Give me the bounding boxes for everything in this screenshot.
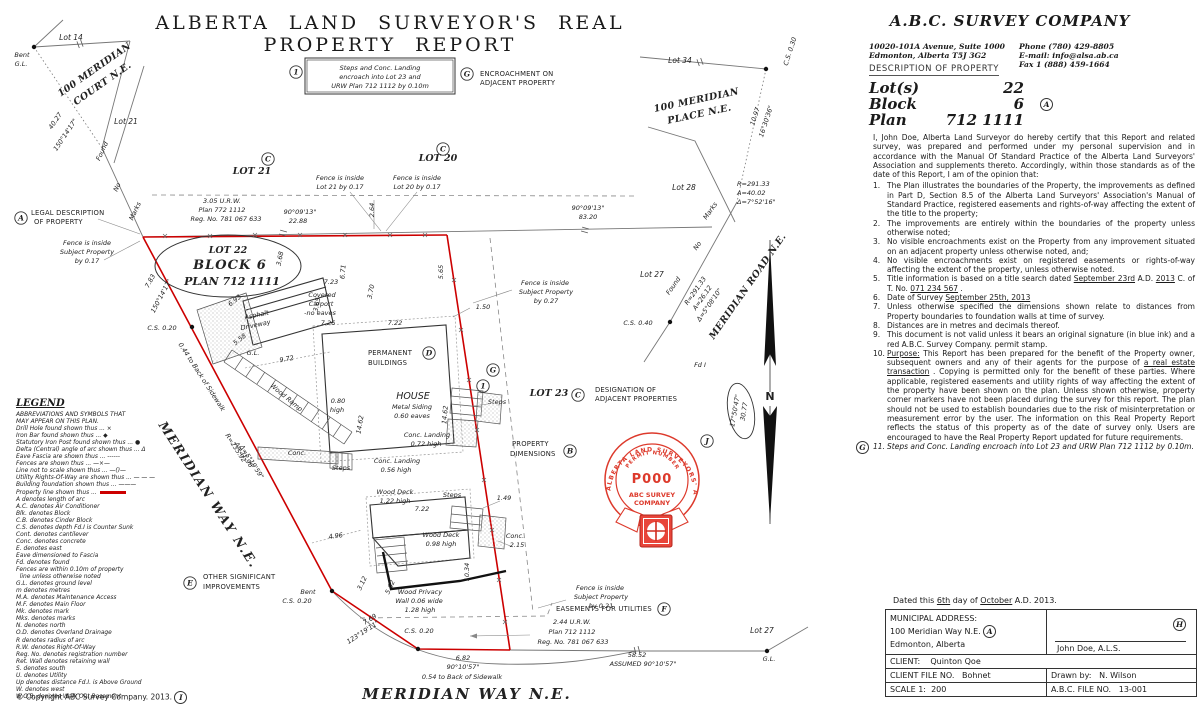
abc-file-value: 13-001 xyxy=(1119,685,1147,694)
legend-line: MAY APPEAR ON THIS PLAN. xyxy=(16,419,174,426)
circled-ref-g: G xyxy=(461,68,473,80)
svg-text:A: A xyxy=(17,214,24,223)
map-label: Lot 21 by 0.17 xyxy=(316,183,364,191)
circled-ref-a: A xyxy=(15,212,27,224)
map-label: ENCROACHMENT ON xyxy=(480,70,553,78)
map-label: Lot 34 xyxy=(668,56,692,65)
map-label: 5.65 xyxy=(437,265,445,279)
map-label: DESIGNATION OF xyxy=(595,386,656,394)
company-fax: Fax 1 (888) 459-1664 xyxy=(1019,60,1119,69)
map-label: 1.49 xyxy=(497,494,511,502)
map-label: 7.26 xyxy=(321,319,335,327)
svg-text:F: F xyxy=(660,605,667,614)
map-label: LOT 22 xyxy=(208,245,248,256)
map-label: Subject Property xyxy=(519,288,573,296)
map-label: Found xyxy=(664,275,683,297)
map-label: LOT 20 xyxy=(418,153,458,164)
circled-ref-d: D xyxy=(423,347,435,359)
legend-line: Conc. denotes concrete xyxy=(16,539,174,546)
map-label: by 0.27 xyxy=(534,297,559,305)
certification-item: 7.Unless otherwise specified the dimensi… xyxy=(873,302,1195,321)
map-label: 83.20 xyxy=(579,213,598,221)
map-label: G.L. xyxy=(763,655,776,663)
circled-ref-c: C xyxy=(437,143,449,155)
certification-item: 9.This document is not valid unless it b… xyxy=(873,330,1195,349)
map-label: 3.68 xyxy=(275,251,286,267)
map-label: Fence is inside xyxy=(316,174,364,182)
map-label: No xyxy=(692,240,704,252)
company-email: E-mail: info@alsa.ab.ca xyxy=(1019,51,1119,60)
map-label: 3.05 U.R.W. xyxy=(203,197,241,205)
ref-h: H xyxy=(1173,618,1186,631)
municipal-address-2: Edmonton, Alberta xyxy=(890,640,1042,649)
map-label: C.S. 0.40 xyxy=(623,319,652,327)
legend-line: Building foundation shown thus ... ——— xyxy=(16,482,174,489)
legend-line: O.D. denotes Overland Drainage xyxy=(16,630,174,637)
map-label: Marks xyxy=(127,200,143,222)
map-label: 22.88 xyxy=(289,217,308,225)
svg-text:G: G xyxy=(490,366,497,375)
company-address-1: 10020-101A Avenue, Suite 1000 xyxy=(869,42,1019,51)
map-label: 3.70 xyxy=(366,284,377,300)
map-label: A=40.02 xyxy=(736,189,766,197)
map-label: Wall 0.06 wide xyxy=(395,597,443,605)
company-address-2: Edmonton, Alberta T5J 3G2 xyxy=(869,51,1019,60)
abc-file-label: A.B.C. FILE NO. xyxy=(1051,685,1111,694)
legend-line: Delta (Central) angle of arc shown thus … xyxy=(16,447,174,454)
circled-ref-1: 1 xyxy=(477,380,489,392)
certification-text: I, John Doe, Alberta Land Surveyor do he… xyxy=(873,133,1195,451)
map-label: 90°09'13" xyxy=(284,208,317,216)
map-label: 1.28 high xyxy=(405,606,436,614)
certification-items: 1.The Plan illustrates the boundaries of… xyxy=(873,181,1195,451)
map-label: OF PROPERTY xyxy=(34,218,83,226)
svg-text:C: C xyxy=(575,391,581,400)
legend-line: R.W. denotes Right-Of-Way xyxy=(16,645,174,652)
svg-text:C: C xyxy=(440,145,446,154)
client-label: CLIENT: xyxy=(890,657,920,666)
map-label: 14.62 xyxy=(354,415,365,435)
map-label: 1.22 high xyxy=(380,497,411,505)
legend-line: C.S. denotes depth Fd.I is Counter Sunk xyxy=(16,525,174,532)
real-property-report-sheet: ALBERTA LAND SURVEYOR'S REAL PROPERTY RE… xyxy=(0,0,1200,724)
legend-line: ABBREVIATIONS AND SYMBOLS THAT xyxy=(16,412,174,419)
map-label: HOUSE xyxy=(396,391,430,402)
svg-text:D: D xyxy=(425,349,433,358)
certification-item: 4.No visible encroachments exist on regi… xyxy=(873,256,1195,275)
map-label: high xyxy=(330,406,344,414)
circled-ref-f: F xyxy=(658,603,670,615)
map-label: C.S. 0.20 xyxy=(282,597,311,605)
map-label: C.S. 0.20 xyxy=(147,324,176,332)
legend-line: Eave Fascia are shown thus ... ------ xyxy=(16,454,174,461)
map-label: Wood Ramp xyxy=(269,382,304,414)
map-label: ADJACENT PROPERTY xyxy=(480,79,556,87)
municipal-address-label: MUNICIPAL ADDRESS: xyxy=(890,614,1042,623)
map-label: MERIDIAN WAY N.E. xyxy=(361,685,571,703)
certification-item: 1.The Plan illustrates the boundaries of… xyxy=(873,181,1195,218)
map-label: R=291.33 xyxy=(737,180,770,188)
map-label: Found xyxy=(94,140,110,162)
map-label: 90°09'13" xyxy=(572,204,605,212)
map-label: Carport xyxy=(309,300,334,308)
legend-line: S. denotes south xyxy=(16,666,174,673)
map-label: 0.98 high xyxy=(426,540,457,548)
stamp-permit-number: P000 xyxy=(632,472,673,487)
map-label: Fd I xyxy=(694,361,706,369)
signature-line xyxy=(1055,641,1186,642)
map-label: 3.12 xyxy=(356,575,369,592)
certification-item: 2.The improvements are entirely within t… xyxy=(873,219,1195,238)
map-label: MERIDIAN ROAD N.E. xyxy=(707,232,789,343)
company-phone: Phone (780) 429-8805 xyxy=(1019,42,1119,51)
municipal-address-1: 100 Meridian Way N.E. xyxy=(890,627,981,636)
map-label: Steps xyxy=(332,464,351,472)
map-label: Plan 772 1112 xyxy=(199,206,246,214)
drawn-by-label: Drawn by: xyxy=(1051,671,1091,680)
map-label: 7.83 xyxy=(143,273,157,290)
map-label: LOT 23 xyxy=(529,388,569,399)
certification-item: 3.No visible encroachments exist on the … xyxy=(873,237,1195,256)
legend-line: Reg. No. denotes registration number xyxy=(16,652,174,659)
drawn-by-value: N. Wilson xyxy=(1099,671,1136,680)
legend-line: Cont. denotes cantilever xyxy=(16,532,174,539)
map-label: Fence is inside xyxy=(521,279,569,287)
map-label: 2.15 xyxy=(510,541,524,549)
map-label: N xyxy=(765,390,774,403)
map-label: 1.50 xyxy=(476,303,490,311)
map-label: Conc. xyxy=(288,449,306,457)
report-panel: A.B.C. SURVEY COMPANY 10020-101A Avenue,… xyxy=(855,0,1200,724)
dated-line: Dated this 6th day of October A.D. 2013. xyxy=(893,596,1197,605)
legend-title: LEGEND xyxy=(16,398,174,409)
client-name: Quinton Qoe xyxy=(930,657,980,666)
legend-line: Up denotes distance Fd.I. is Above Groun… xyxy=(16,680,174,687)
company-name: A.B.C. SURVEY COMPANY xyxy=(855,12,1165,30)
map-label: 9.72 xyxy=(279,354,295,364)
legend-lines: ABBREVIATIONS AND SYMBOLS THATMAY APPEAR… xyxy=(16,412,174,701)
circled-ref-j: J xyxy=(701,435,713,447)
map-label: 40.27 xyxy=(47,110,65,131)
legend-line: A.C. denotes Air Conditioner xyxy=(16,504,174,511)
stamp-org-1: ABC SURVEY xyxy=(629,491,675,499)
map-label: PROPERTY xyxy=(512,440,549,448)
map-label: Marks xyxy=(702,200,720,221)
map-label: G.L. xyxy=(247,349,260,357)
map-label: Subject Property xyxy=(60,248,114,256)
svg-text:G: G xyxy=(464,70,471,79)
map-label: 14.62 xyxy=(440,405,450,424)
legend-line: R denotes radius of arc xyxy=(16,638,174,645)
map-label: Lot 20 by 0.17 xyxy=(393,183,441,191)
lot-block-plan: Lot(s) 22 Block 6 A Plan 712 1111 xyxy=(869,80,1069,128)
map-label: Lot 27 xyxy=(750,626,774,635)
map-label: Wood Deck xyxy=(423,531,460,539)
map-label: Fence is inside xyxy=(393,174,441,182)
map-label: Steps xyxy=(443,491,462,499)
map-label: Δ=7°52'16" xyxy=(736,198,776,206)
legend-line: N. denotes north xyxy=(16,623,174,630)
circled-ref-c: C xyxy=(572,389,584,401)
map-label: 10.34 xyxy=(463,563,471,582)
map-label: Lot 21 xyxy=(114,117,138,126)
legend-line: Mks. denotes marks xyxy=(16,616,174,623)
svg-text:J: J xyxy=(703,437,709,446)
certification-intro: I, John Doe, Alberta Land Surveyor do he… xyxy=(873,133,1195,179)
ref-a: A xyxy=(1040,98,1053,111)
certification-item: 8.Distances are in metres and decimals t… xyxy=(873,321,1195,330)
map-label: LEGAL DESCRIPTION xyxy=(31,209,104,217)
map-label: No xyxy=(112,181,123,192)
map-label: 6.82 xyxy=(456,654,470,662)
certification-item: 6.Date of Survey September 25th, 2013 xyxy=(873,293,1195,302)
map-label: by 0.17 xyxy=(75,257,100,265)
legend-line: Statutory Iron Post found shown thus ...… xyxy=(16,440,174,447)
map-label: Fence is inside xyxy=(63,239,111,247)
map-label: 5.62 xyxy=(384,579,397,596)
map-label: Covered xyxy=(308,291,336,299)
map-label: 0.60 eaves xyxy=(394,412,430,420)
svg-text:C: C xyxy=(265,155,271,164)
legend-line: Ret. Wall denotes retaining wall xyxy=(16,659,174,666)
stamp-org-2: COMPANY xyxy=(634,499,670,507)
certification-item: 10.Purpose: This Report has been prepare… xyxy=(873,349,1195,442)
map-label: Steps and Conc. Landing xyxy=(340,64,421,72)
north-arrow xyxy=(763,240,777,524)
legend-line: m denotes metres xyxy=(16,588,174,595)
map-label: 0.56 high xyxy=(381,466,412,474)
client-file-value: Bohnet xyxy=(962,671,991,680)
client-file-label: CLIENT FILE NO. xyxy=(890,671,954,680)
map-label: PERMANENT xyxy=(368,349,413,357)
map-label: 58.52 xyxy=(628,651,647,659)
map-label: OTHER SIGNIFICANT xyxy=(203,573,276,581)
plan-label: Plan xyxy=(869,111,939,129)
legend-line: Eave dimensioned to Fascia xyxy=(16,553,174,560)
legend: LEGEND ABBREVIATIONS AND SYMBOLS THATMAY… xyxy=(16,398,174,701)
arrowhead xyxy=(470,634,477,639)
map-label: EASEMENTS FOR UTILITIES xyxy=(556,605,652,613)
ref-g-item: G xyxy=(856,441,869,454)
map-label: DIMENSIONS xyxy=(510,450,556,458)
map-label: 6.71 xyxy=(338,264,347,279)
map-label: BUILDINGS xyxy=(368,359,407,367)
map-label: Plan 712 1112 xyxy=(549,628,596,636)
legend-line: Drill Hole found shown thus ... ⨯ xyxy=(16,426,174,433)
map-label: BLOCK 6 xyxy=(192,258,267,273)
map-label: encroach into Lot 23 and xyxy=(339,73,421,81)
map-label: Lot 14 xyxy=(59,33,83,42)
map-label: 10.97 xyxy=(748,105,762,126)
legend-line: M.A. denotes Maintenance Access xyxy=(16,595,174,602)
ref-i: I xyxy=(174,691,187,704)
map-label: 0.54 to Back of Sidewalk xyxy=(422,673,502,681)
legend-line: line unless otherwise noted xyxy=(16,574,174,581)
legend-line: U. denotes Utility xyxy=(16,673,174,680)
legend-line: M.F. denotes Main Floor xyxy=(16,602,174,609)
legend-line: Fd. denotes found xyxy=(16,560,174,567)
legend-line: Fences are within 0.10m of property xyxy=(16,567,174,574)
map-label: Fence is inside xyxy=(576,584,624,592)
map-label: PLAN 712 1111 xyxy=(183,275,280,288)
map-label: 4.96 xyxy=(328,531,343,541)
svg-text:1: 1 xyxy=(480,382,485,391)
map-label: Wood Privacy xyxy=(398,588,442,596)
map-label: 90°10'57" xyxy=(447,663,480,671)
map-label: C.S. 0.20 xyxy=(404,627,433,635)
map-label: Metal Siding xyxy=(392,403,432,411)
map-label: Wood Deck xyxy=(377,488,414,496)
circled-ref-b: B xyxy=(564,445,576,457)
map-label: 0.80 xyxy=(331,397,345,405)
scale-value: 200 xyxy=(931,685,946,694)
stamp-seal-icon xyxy=(640,515,672,547)
svg-text:E: E xyxy=(186,579,193,588)
surveyor-name: John Doe, A.L.S. xyxy=(1057,644,1121,653)
circled-ref-1: 1 xyxy=(290,66,302,78)
map-label: G.L. xyxy=(15,60,28,68)
map-label: -no eaves xyxy=(304,309,336,317)
certification-item: G11.Steps and Conc. Landing encroach int… xyxy=(873,442,1195,451)
legend-line: Iron Bar found shown thus ... ◆ xyxy=(16,433,174,440)
circled-ref-g: G xyxy=(487,364,499,376)
map-label: ADJACENT PROPERTIES xyxy=(595,395,677,403)
legend-line: G.L. denotes ground level xyxy=(16,581,174,588)
copyright-line: © Copyright ABC Survey Company. 2013. I xyxy=(16,691,187,704)
map-label: Conc. xyxy=(506,532,524,540)
circled-ref-c: C xyxy=(262,153,274,165)
map-label: Bent xyxy=(14,51,30,59)
map-label: Conc. Landing xyxy=(404,431,450,439)
circled-ref-e: E xyxy=(184,577,196,589)
title-block: Dated this 6th day of October A.D. 2013.… xyxy=(885,596,1197,697)
map-label: Reg. No. 781 067 633 xyxy=(190,215,261,223)
map-label: Steps xyxy=(488,398,507,406)
plan-value: 712 1111 xyxy=(939,111,1024,129)
map-label: URW Plan 712 1112 by 0.10m xyxy=(331,82,429,90)
map-label: 0.72 high xyxy=(411,440,442,448)
svg-text:1: 1 xyxy=(293,68,298,77)
map-label: Lot 28 xyxy=(672,183,696,192)
map-label: 7.22 xyxy=(415,505,429,513)
ref-a-address: A xyxy=(983,625,996,638)
map-label: ASSUMED 90°10'57" xyxy=(609,660,677,668)
legend-line: Utility Rights-Of-Way are shown thus ...… xyxy=(16,475,174,482)
legend-line: Mk. denotes mark xyxy=(16,609,174,616)
scale-label: SCALE 1: xyxy=(890,685,926,694)
map-label: C.S. 0.30 xyxy=(782,36,799,66)
legend-line: C.B. denotes Cinder Block xyxy=(16,518,174,525)
description-heading: DESCRIPTION OF PROPERTY xyxy=(869,64,999,76)
legend-line: E. denotes east xyxy=(16,546,174,553)
map-label: Bent xyxy=(300,588,316,596)
map-label: 7.22 xyxy=(388,319,402,327)
map-label: Conc. Landing xyxy=(374,457,420,465)
legend-line: A denotes length of arc xyxy=(16,497,174,504)
map-label: 2.44 U.R.W. xyxy=(553,618,591,626)
legend-line: Line not to scale shown thus ... —()— xyxy=(16,468,174,475)
certification-item: 5.Title information is based on a title … xyxy=(873,274,1195,293)
svg-text:B: B xyxy=(566,447,573,456)
legend-line: Fences are shown thus ... —×— xyxy=(16,461,174,468)
map-label: Lot 27 xyxy=(640,270,664,279)
map-label: Reg. No. 781 067 633 xyxy=(537,638,608,646)
map-label: 2.64 xyxy=(368,203,376,217)
legend-line: Property line shown thus ... xyxy=(16,490,174,497)
legend-line: Blk. denotes Block xyxy=(16,511,174,518)
map-label: 7.23 xyxy=(324,278,338,286)
map-label: LOT 21 xyxy=(232,166,272,177)
map-label: Subject Property xyxy=(574,593,628,601)
map-label: IMPROVEMENTS xyxy=(203,583,260,591)
